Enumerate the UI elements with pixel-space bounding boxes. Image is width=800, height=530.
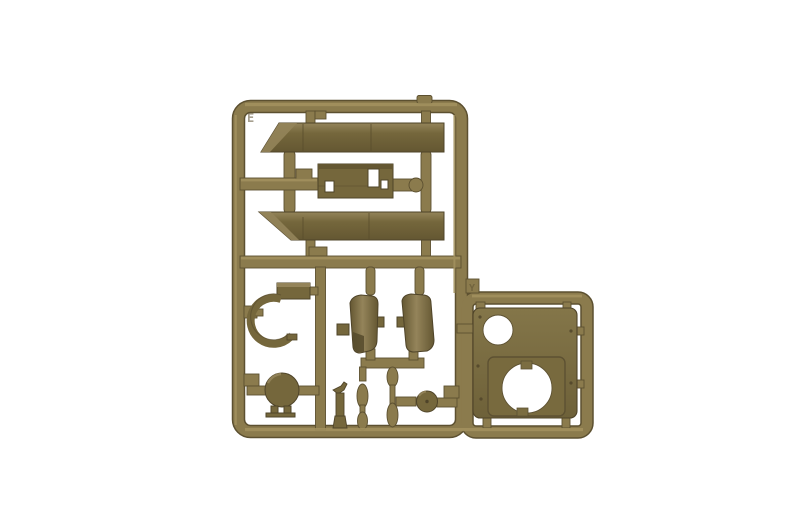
runner-horizontal-r3	[297, 386, 319, 395]
highlight	[453, 115, 455, 293]
gate	[562, 417, 570, 428]
gate-block	[444, 386, 459, 398]
highlight	[472, 295, 582, 298]
gate	[422, 239, 431, 257]
rivet	[569, 329, 572, 332]
highlight	[235, 115, 237, 425]
shell-body	[402, 294, 434, 352]
hatch-hinge-bar	[266, 413, 295, 417]
part-fender-strip-lower	[259, 212, 444, 240]
part-hull-plate	[473, 308, 577, 418]
wheel-axle-hole	[425, 400, 428, 403]
rivet	[476, 364, 479, 367]
hull-plate-large-hole	[502, 363, 552, 413]
gate-block	[296, 169, 312, 179]
runner-rod-b-bulge	[387, 403, 398, 427]
arch-block-highlight	[277, 283, 310, 287]
bracket-body	[336, 393, 344, 417]
hull-plate-key-tab	[521, 361, 532, 369]
gate-bulge	[409, 178, 423, 192]
highlight	[245, 103, 457, 106]
sprue-gate-tab-top	[417, 96, 432, 104]
slotted-plate-lip	[318, 164, 393, 169]
runner-rod-b-bulge	[387, 367, 398, 387]
sprue-photo: E Y	[0, 0, 800, 530]
hull-plate-small-hole	[483, 315, 513, 345]
embossed-letter-corner: E	[247, 111, 254, 125]
runner-rod-a	[360, 367, 367, 381]
gate	[457, 324, 474, 333]
arch-foot	[287, 334, 297, 340]
embossed-letter-gate: Y	[469, 283, 475, 294]
plate-slot	[325, 181, 334, 192]
runner-rod-a-bulge	[358, 412, 368, 430]
gate	[483, 417, 491, 428]
highlight	[245, 428, 583, 431]
part-small-wheel	[417, 391, 438, 412]
highlight	[241, 179, 317, 182]
gate-block	[309, 247, 327, 256]
gate-block	[244, 374, 259, 386]
sprue-illustration: E Y	[0, 0, 800, 530]
part-slotted-plate	[318, 164, 393, 198]
bracket-foot	[333, 416, 347, 428]
rivet	[479, 397, 482, 400]
hull-plate-key-tab	[517, 408, 528, 416]
gate-block	[315, 111, 326, 119]
runner-horizontal-r4	[437, 398, 457, 407]
gate	[366, 267, 375, 295]
rivet	[569, 381, 572, 384]
highlight	[241, 257, 460, 260]
runner-horizontal-r4	[396, 397, 416, 406]
gate	[415, 267, 424, 295]
part-fender-strip-upper	[261, 123, 444, 152]
plate-slot	[381, 180, 388, 189]
shell-tab	[337, 324, 349, 335]
plate-slot	[368, 169, 379, 187]
rivet	[478, 315, 481, 318]
runner-rod-a-bulge	[357, 384, 368, 408]
gate	[247, 386, 267, 395]
